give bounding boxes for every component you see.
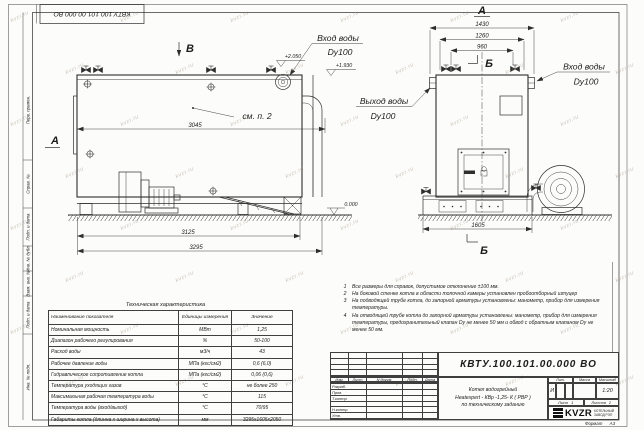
- dim-3125: 3125: [181, 230, 195, 236]
- dim-960: 960: [477, 45, 488, 51]
- door-handle: [464, 171, 475, 175]
- port-mark-icon: [86, 150, 95, 159]
- valve-icon: [267, 66, 276, 73]
- drawing-sheet: КВТУ.100.101.00.000 ВО Перв. примен. Спр…: [0, 0, 644, 430]
- margin-label: Инв. № дубл.: [26, 245, 31, 271]
- side-view-labels: В А см. п. 2 Вход воды Dy100: [45, 33, 363, 148]
- col-data: Дата: [423, 378, 438, 382]
- note-number: 3: [338, 298, 352, 312]
- document-title: Котел водогрейный Heatexpert - КВр -1,25…: [438, 377, 548, 420]
- margin-label: Инв. № подл.: [26, 364, 31, 391]
- param-unit: мм: [179, 414, 232, 425]
- view-b-label: В: [186, 43, 194, 55]
- stamp-doc-number: КВТУ.100.101.00.000 ВО: [53, 10, 130, 17]
- param-value: 115: [232, 392, 293, 403]
- title-line: по техническому заданию: [462, 402, 525, 410]
- company-name: КОТЕЛЬНЫЙ ЗАВОД РЭП: [594, 409, 614, 417]
- valve-icon: [94, 66, 103, 73]
- param-name: Номинальная мощность: [49, 325, 179, 336]
- note-number: 2: [338, 291, 352, 298]
- table-row: Габариты котла (длинна х ширина х высота…: [49, 414, 293, 425]
- param-name: Максимальная рабочая температура воды: [49, 392, 179, 403]
- kvzr-logo-text: KVZR: [565, 408, 592, 419]
- col-izm: Изм.: [331, 378, 349, 382]
- valve-icon: [442, 65, 451, 72]
- param-value: не более 250: [232, 380, 293, 391]
- param-unit: °С: [179, 392, 232, 403]
- format-value: А3: [610, 421, 615, 426]
- param-name: Диапазон рабочего регулирования: [49, 336, 179, 347]
- note-number: 4: [338, 313, 352, 334]
- inlet-top-label: Вход воды: [317, 33, 359, 43]
- param-unit: °С: [179, 380, 232, 391]
- format-label: Формат А3: [552, 421, 644, 426]
- param-value: 0,6 (6,0): [232, 358, 293, 369]
- dim-1605: 1605: [471, 223, 485, 229]
- ground-hatch: [418, 216, 612, 222]
- col-header: Наименование показателя: [49, 311, 179, 325]
- title-block: КВТУ.100.101.00.000 ВО Изм. Лист N докум…: [330, 352, 619, 420]
- note-text: На подводящей трубе котла, до запорной а…: [352, 298, 602, 312]
- dim-3295: 3295: [189, 245, 203, 251]
- table-row: Температура воды (вход/выход) °С 70/95: [49, 403, 293, 414]
- title-line: Heatexpert - КВр -1,25- К ( РВР ): [455, 395, 531, 403]
- margin-label: Подп. и дата: [26, 301, 31, 329]
- param-name: Гидравлическое сопротивление котла: [49, 369, 179, 380]
- sheets-value: 2: [609, 400, 611, 405]
- valve-icon: [532, 184, 541, 191]
- elevation-2050: +2.050: [285, 54, 301, 60]
- col-ndocum: N докум.: [367, 378, 403, 382]
- company-line: ЗАВОД РЭП: [594, 413, 614, 417]
- param-unit: м3/ч: [179, 347, 232, 358]
- side-view: [68, 66, 352, 221]
- company-cell: KVZR КОТЕЛЬНЫЙ ЗАВОД РЭП: [548, 406, 619, 420]
- col-podp: Подп.: [403, 378, 423, 382]
- param-value: 3295х1605х2050: [232, 414, 293, 425]
- sheet-cell: Лист 1: [548, 399, 584, 406]
- notes-list: 1 Все размеры для справок, допустимое от…: [338, 284, 602, 334]
- port-mark-icon: [209, 187, 218, 196]
- burner-fan-motor: [119, 172, 180, 213]
- margin-labels: Перв. примен. Справ. № Подп. и дата Инв.…: [26, 96, 31, 391]
- param-value: 70/95: [232, 403, 293, 414]
- lit-value: И: [548, 383, 556, 399]
- margin-label: Подп. и дата: [26, 213, 31, 241]
- sheets-cell: Листов 2: [584, 399, 620, 406]
- ground-hatch: [68, 216, 352, 222]
- drain-valve-icon: [422, 188, 431, 195]
- format-word: Формат: [585, 421, 602, 426]
- view-a-front-label: А: [477, 5, 486, 17]
- param-name: Габариты котла (длинна х ширина х высота…: [49, 414, 179, 425]
- section-b-top-label: Б: [485, 58, 493, 70]
- title-line: Котел водогрейный: [469, 387, 517, 395]
- table-row: Номинальная мощность МВт 1,25: [49, 325, 293, 336]
- inlet-right-dn: Dy100: [574, 77, 599, 87]
- elevation-zero: 0.000: [344, 202, 357, 208]
- front-view-dimensions: 1430 1260 960 1605: [423, 22, 534, 233]
- param-value: 0,06 (0,6): [232, 369, 293, 380]
- valve-icon: [207, 66, 216, 73]
- sheets-label: Листов: [591, 400, 606, 405]
- tech-characteristics-table: Техническая характеристика Наименование …: [48, 302, 283, 426]
- boiler-body-side: [77, 75, 302, 197]
- param-name: Температура воды (вход/выход): [49, 403, 179, 414]
- tech-table-title: Техническая характеристика: [48, 302, 283, 308]
- inspection-panel: [500, 96, 522, 115]
- sheet-label: Лист: [558, 400, 568, 405]
- view-a-side-label: А: [50, 135, 59, 147]
- table-row: Максимальная рабочая температура воды °С…: [49, 392, 293, 403]
- param-name: Температура уходящих газов: [49, 380, 179, 391]
- param-unit: МВт: [179, 325, 232, 336]
- ladder: [219, 197, 294, 214]
- inlet-top-dn: Dy100: [328, 47, 353, 57]
- blower-fan: [527, 166, 585, 215]
- param-value: 50-100: [232, 336, 293, 347]
- table-row: Температура уходящих газов °С не более 2…: [49, 380, 293, 391]
- dim-1430: 1430: [475, 22, 489, 28]
- elevation-1930: +1.930: [336, 63, 352, 69]
- param-name: Расход воды: [49, 347, 179, 358]
- table-row: Диапазон рабочего регулирования % 50-100: [49, 336, 293, 347]
- valve-icon: [452, 65, 461, 72]
- outlet-label: Выход воды: [360, 96, 409, 106]
- col-list: Лист: [349, 378, 367, 382]
- valve-icon: [82, 66, 91, 73]
- note-number: 1: [338, 284, 352, 291]
- see-note-label: см. п. 2: [242, 111, 271, 121]
- rear-flue-duct: [302, 96, 322, 197]
- margin-label: Справ. №: [26, 174, 31, 194]
- side-view-dimensions: 3045 3125 3295 0.000 +2.050 +1.930: [78, 54, 358, 255]
- dim-1260: 1260: [475, 34, 489, 40]
- param-unit: МПа (кгс/см2): [179, 358, 232, 369]
- tech-table-header-row: Наименование показателя Единицы измерени…: [49, 311, 293, 325]
- note-item: 3 На подводящей трубе котла, до запорной…: [338, 298, 602, 312]
- table-row: Гидравлическое сопротивление котла МПа (…: [49, 369, 293, 380]
- margin-label: Перв. примен.: [26, 96, 31, 125]
- param-unit: °С: [179, 403, 232, 414]
- kvzr-logo-icon: [553, 408, 563, 418]
- note-item: 4 На отводящей трубе котла до запорной а…: [338, 313, 602, 334]
- furnace-door: [458, 149, 509, 195]
- scale-value: 1:20: [596, 383, 619, 399]
- section-b-bottom-label: Б: [480, 245, 488, 257]
- sig-label: Утв.: [331, 413, 367, 419]
- signature-rows: Разраб. Пров. Т.контр. Н.контр. Утв.: [330, 383, 438, 420]
- param-name: Рабочее давление воды: [49, 358, 179, 369]
- doc-number: КВТУ.100.101.00.000 ВО: [438, 352, 619, 377]
- sheet-value: 1: [571, 400, 573, 405]
- note-text: На отводящей трубе котла до запорной арм…: [352, 313, 602, 334]
- margin-label: Взам. инв. №: [26, 270, 31, 297]
- revision-grid: [330, 352, 438, 377]
- mass-value: [573, 383, 596, 399]
- param-value: 43: [232, 347, 293, 358]
- col-header: Значение: [232, 311, 293, 325]
- valve-icon: [511, 65, 520, 72]
- param-value: 1,25: [232, 325, 293, 336]
- port-mark-icon: [207, 83, 216, 92]
- col-header: Единицы измерения: [179, 311, 232, 325]
- inlet-flange: [276, 75, 291, 90]
- param-unit: МПа (кгс/см2): [179, 369, 232, 380]
- table-row: Расход воды м3/ч 43: [49, 347, 293, 358]
- table-row: Рабочее давление воды МПа (кгс/см2) 0,6 …: [49, 358, 293, 369]
- dim-3045: 3045: [188, 123, 202, 129]
- outlet-dn: Dy100: [371, 111, 396, 121]
- port-mark-icon: [83, 80, 92, 89]
- inlet-right-label: Вход воды: [563, 62, 605, 72]
- param-unit: %: [179, 336, 232, 347]
